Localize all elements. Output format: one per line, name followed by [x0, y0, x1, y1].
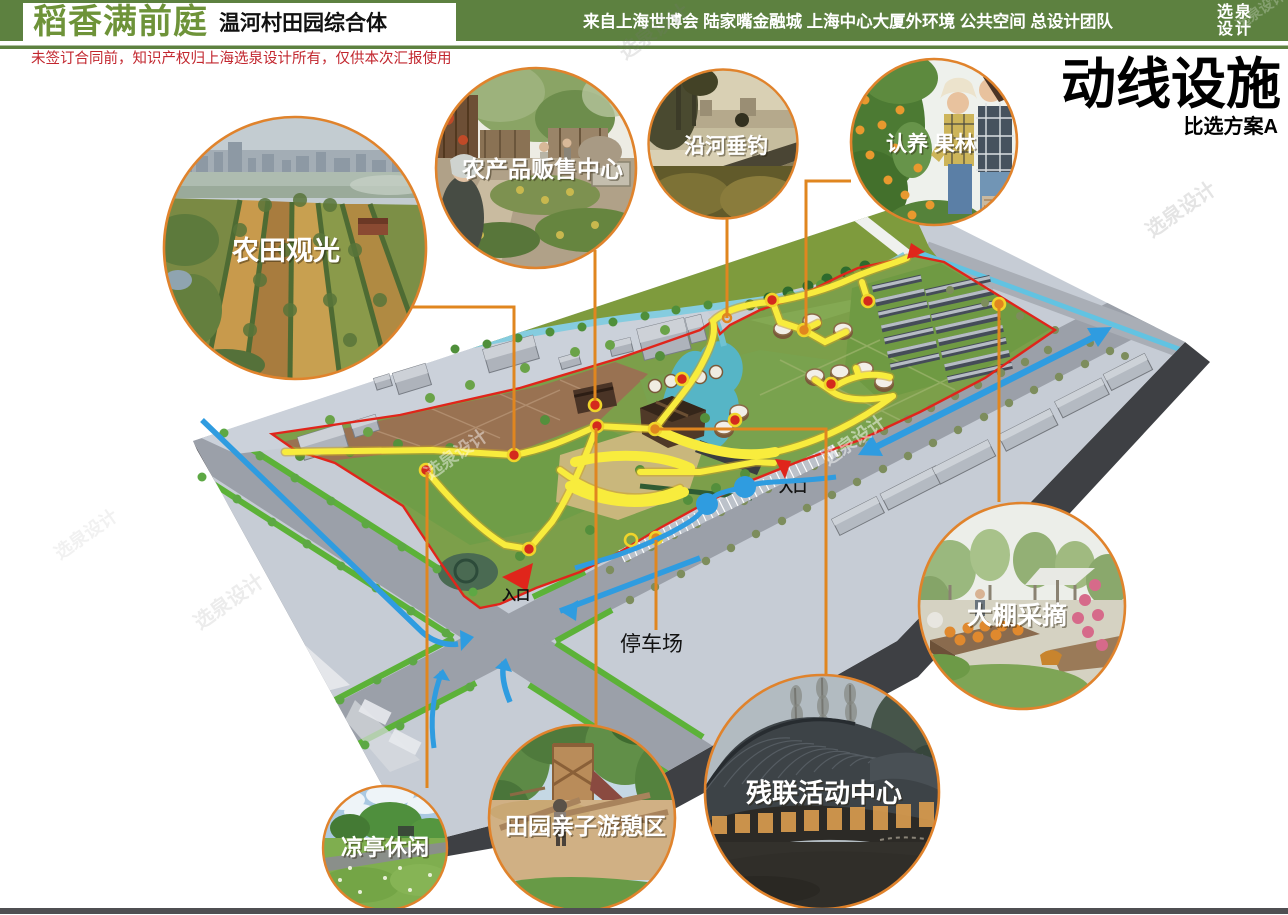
svg-text:温河村田园综合体: 温河村田园综合体 [219, 11, 388, 35]
svg-text:比选方案A: 比选方案A [1184, 114, 1278, 138]
svg-text:农产品贩售中心: 农产品贩售中心 [461, 156, 623, 182]
svg-text:入口: 入口 [502, 587, 530, 603]
svg-text:选泉设计: 选泉设计 [1141, 177, 1220, 243]
svg-text:残联活动中心: 残联活动中心 [746, 778, 902, 808]
svg-text:大棚采摘: 大棚采摘 [967, 601, 1067, 630]
svg-text:未签订合同前，知识产权归上海选泉设计所有，仅供本次汇报使用: 未签订合同前，知识产权归上海选泉设计所有，仅供本次汇报使用 [31, 50, 452, 67]
svg-text:凉亭休闲: 凉亭休闲 [341, 835, 429, 860]
svg-text:认养 果林: 认养 果林 [886, 132, 976, 156]
svg-text:动线设施: 动线设施 [1061, 53, 1281, 115]
svg-text:沿河垂钓: 沿河垂钓 [684, 134, 768, 158]
svg-text:田园亲子游憩区: 田园亲子游憩区 [505, 813, 666, 839]
svg-text:停车场: 停车场 [620, 633, 683, 656]
svg-text:农田观光: 农田观光 [231, 236, 340, 266]
svg-text:稻香满前庭: 稻香满前庭 [33, 2, 208, 41]
svg-text:选泉设计: 选泉设计 [189, 569, 268, 635]
svg-text:选泉设计: 选泉设计 [50, 505, 121, 563]
